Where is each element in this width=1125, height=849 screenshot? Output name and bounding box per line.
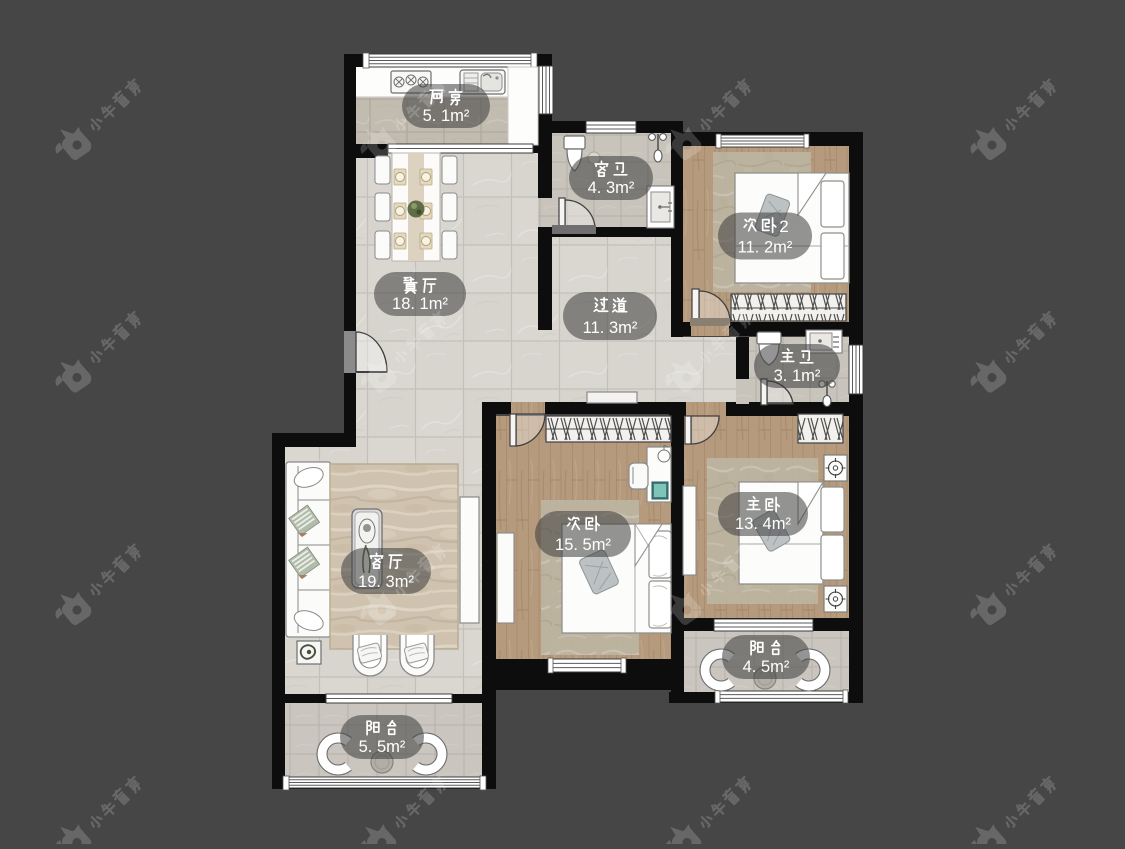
svg-text:4. 5m²: 4. 5m² [743, 658, 790, 676]
svg-text:11. 2m²: 11. 2m² [738, 239, 793, 257]
svg-text:5. 1m²: 5. 1m² [423, 107, 470, 125]
svg-text:13. 4m²: 13. 4m² [735, 515, 791, 533]
svg-text:3. 1m²: 3. 1m² [774, 367, 821, 385]
svg-text:4. 3m²: 4. 3m² [588, 179, 635, 197]
svg-text:18. 1m²: 18. 1m² [392, 295, 448, 313]
svg-text:5. 5m²: 5. 5m² [359, 738, 406, 756]
svg-text:11. 3m²: 11. 3m² [583, 319, 638, 337]
svg-text:15. 5m²: 15. 5m² [555, 536, 611, 554]
svg-text:2: 2 [779, 217, 788, 236]
svg-text:19. 3m²: 19. 3m² [358, 573, 414, 591]
